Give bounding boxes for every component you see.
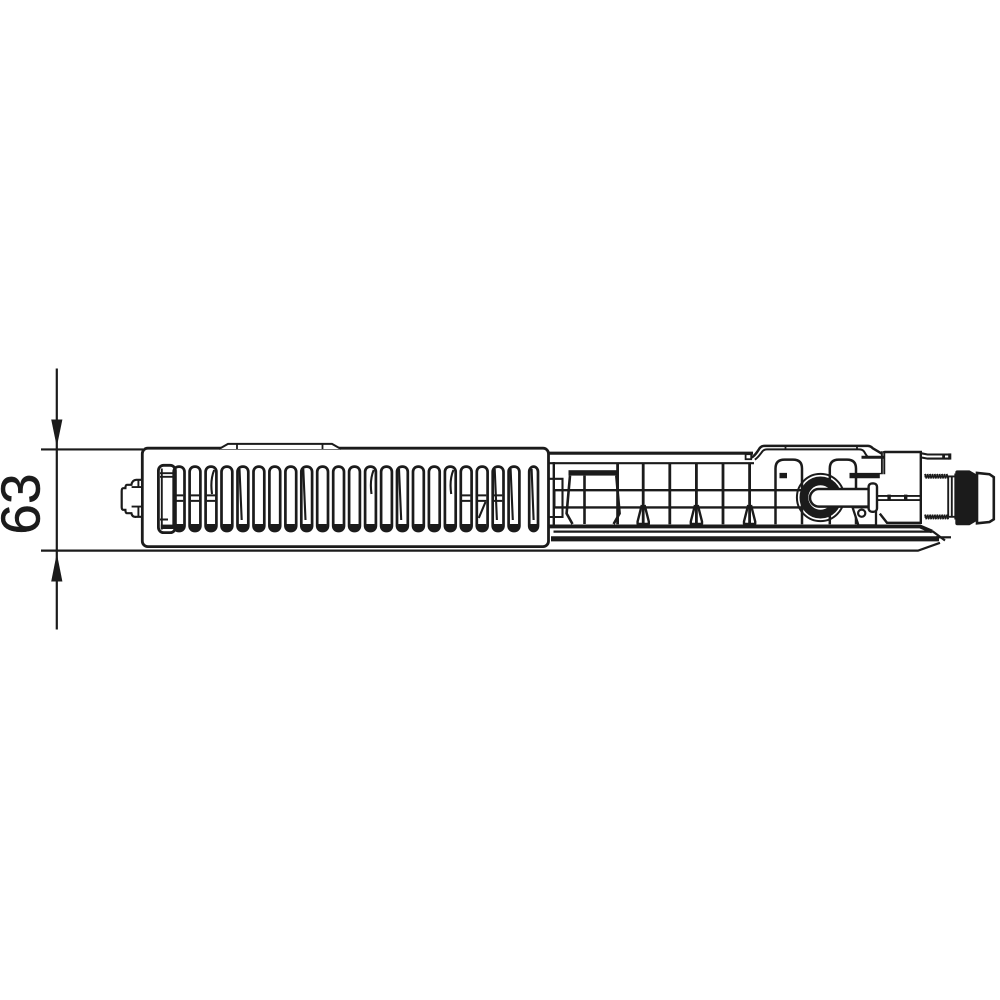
svg-text:63: 63 — [0, 473, 52, 534]
